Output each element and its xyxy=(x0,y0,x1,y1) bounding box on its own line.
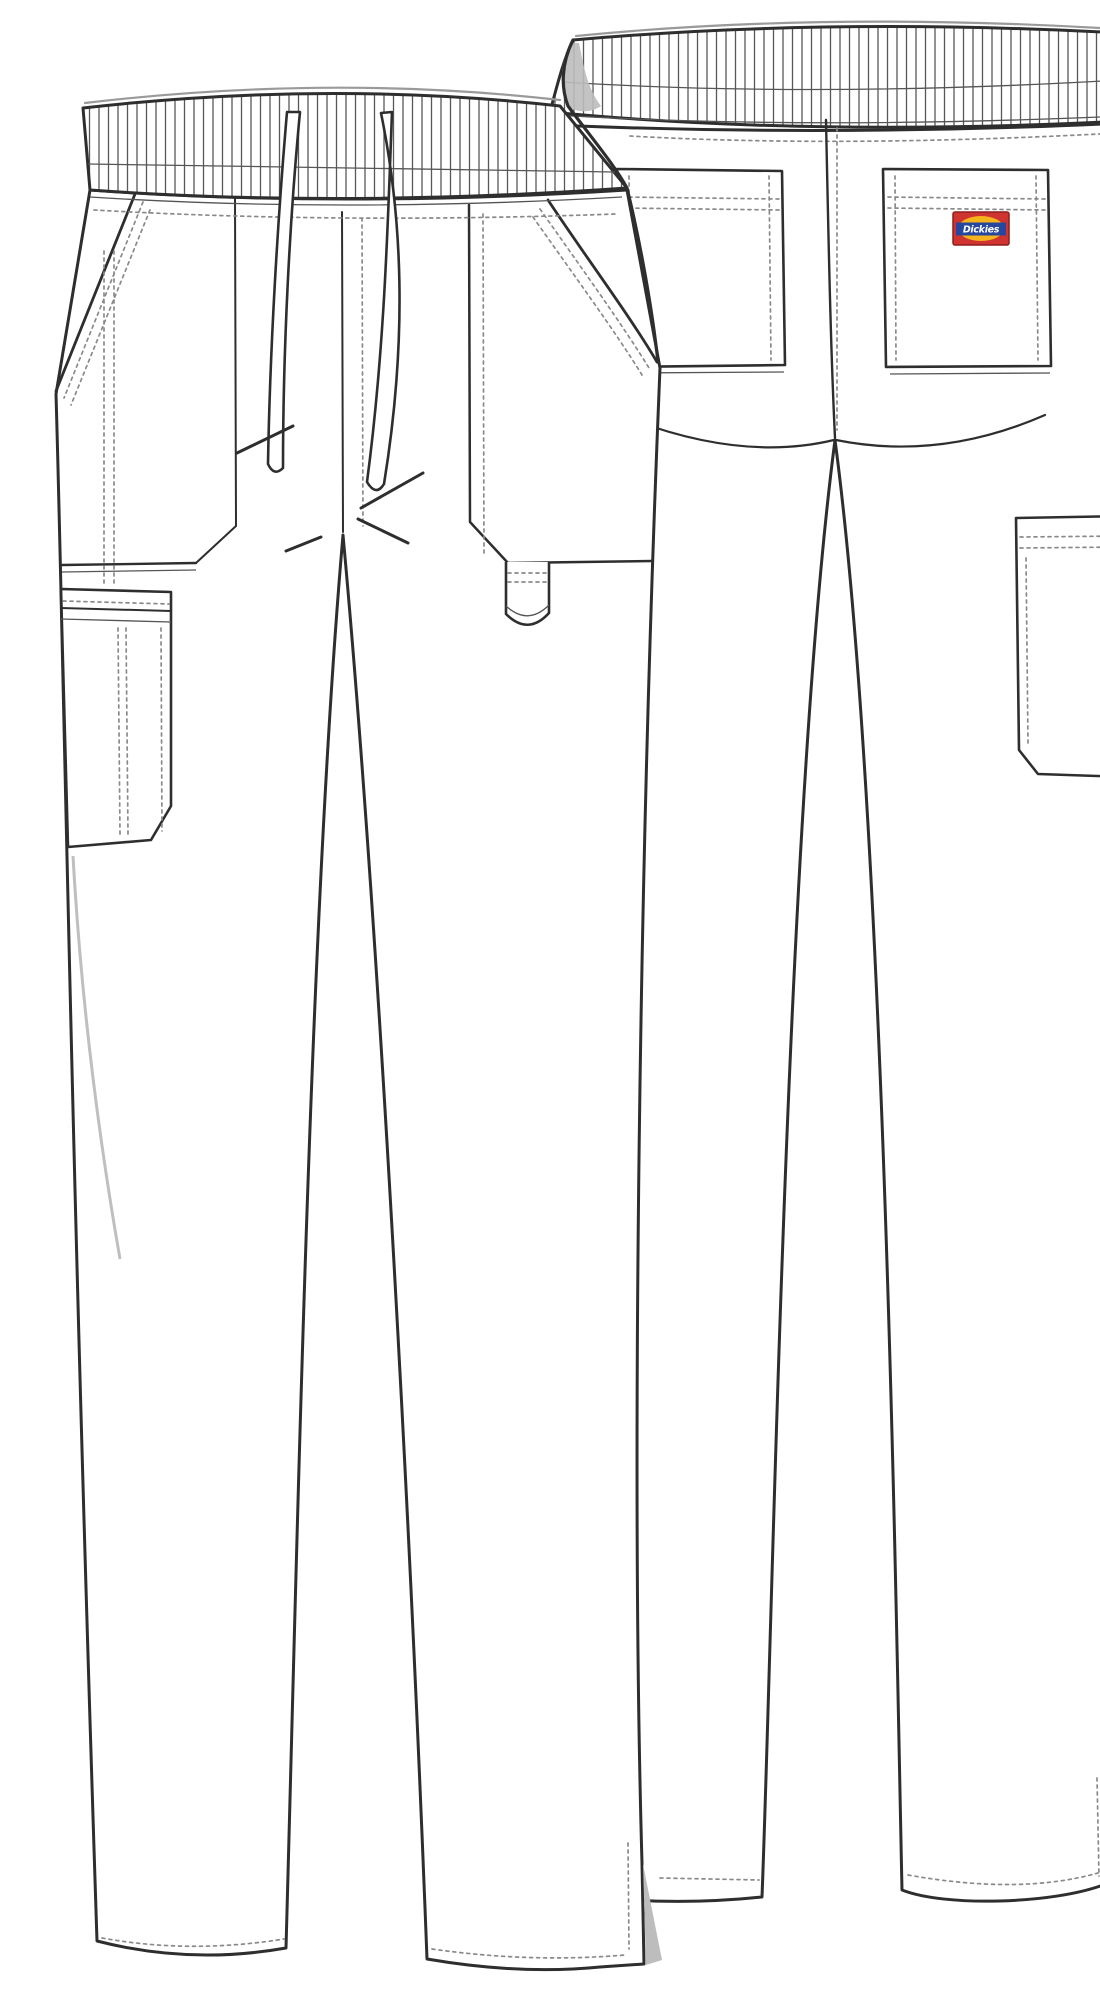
dickies-logo-patch: Dickies xyxy=(953,212,1009,245)
dickies-logo-text: Dickies xyxy=(963,225,1000,236)
scrub-pants-technical-flat: Dickies xyxy=(40,16,1100,1984)
flat-sketch-canvas: Dickies xyxy=(40,16,1100,1984)
front-cargo-pocket xyxy=(61,589,171,847)
front-pants-body xyxy=(56,190,660,1970)
back-cargo-pocket xyxy=(1016,516,1100,777)
front-view xyxy=(56,40,662,1970)
back-patch-pocket-right: Dickies xyxy=(883,169,1051,374)
instrument-loop xyxy=(506,562,549,625)
center-front-seam xyxy=(342,212,343,532)
